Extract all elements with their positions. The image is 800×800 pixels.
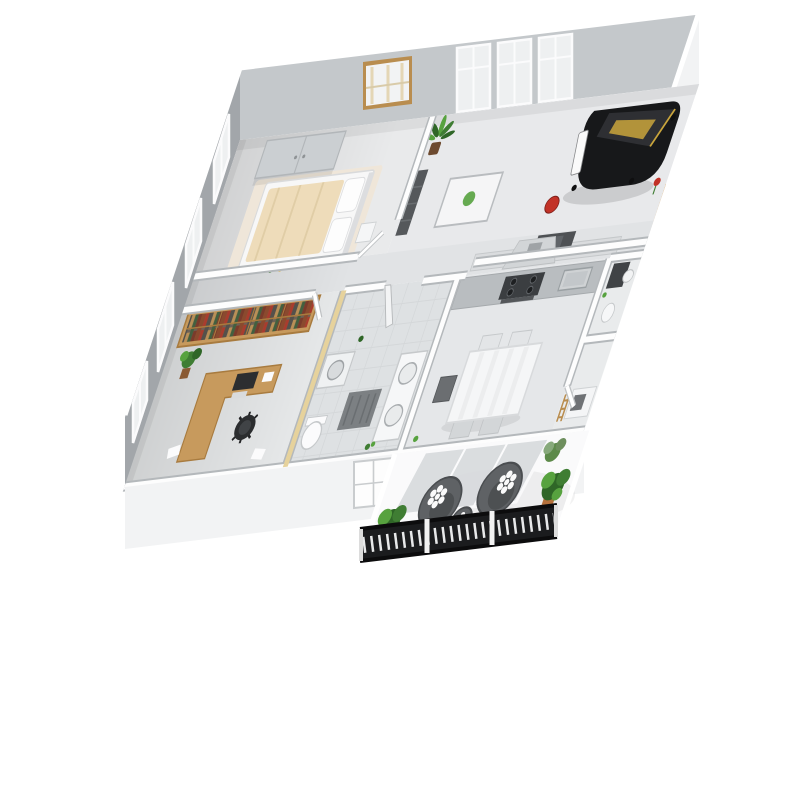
plan [124, 84, 699, 486]
french-windows [457, 34, 572, 112]
floorplan-canvas [0, 0, 800, 800]
floorplan-stage [0, 0, 800, 800]
bedroom-window [363, 56, 412, 110]
